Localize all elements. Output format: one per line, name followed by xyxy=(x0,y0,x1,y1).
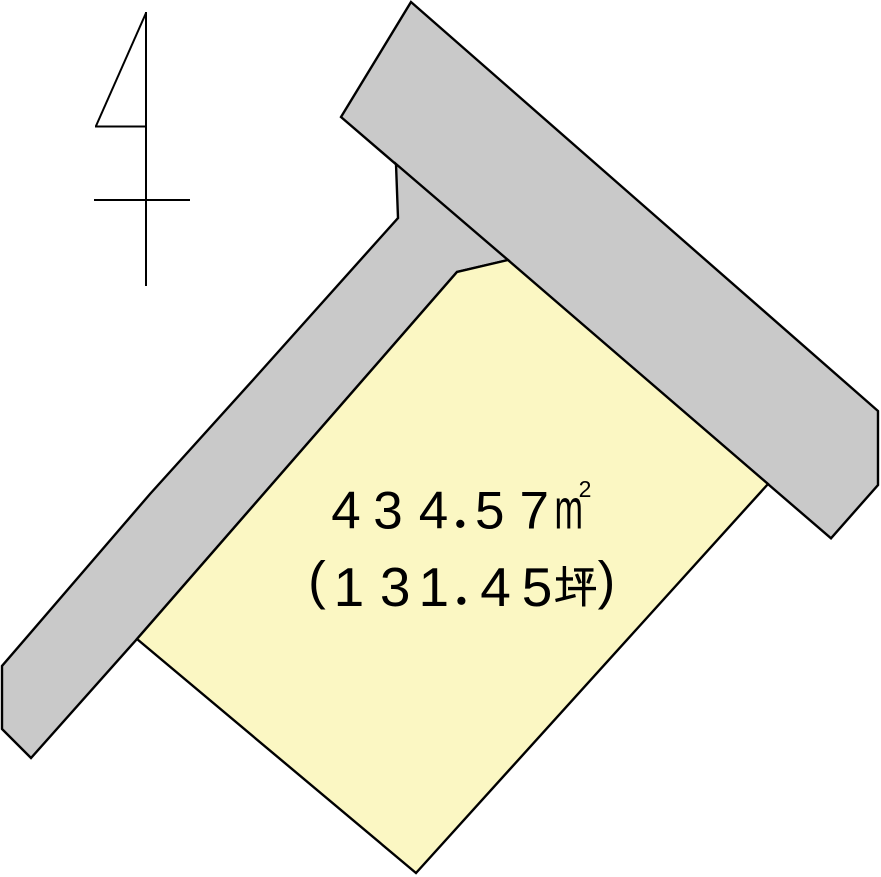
svg-text:2: 2 xyxy=(579,476,592,502)
svg-text:1: 1 xyxy=(419,556,450,618)
svg-text:4: 4 xyxy=(419,482,448,541)
svg-text:(: ( xyxy=(308,552,326,611)
svg-text:7: 7 xyxy=(520,482,549,541)
svg-text:3: 3 xyxy=(380,556,411,618)
svg-text:3: 3 xyxy=(373,482,402,541)
svg-text:1: 1 xyxy=(334,556,365,618)
svg-text:): ) xyxy=(598,552,616,611)
svg-text:5: 5 xyxy=(522,556,553,618)
svg-text:4: 4 xyxy=(480,556,511,618)
svg-text:5: 5 xyxy=(475,482,504,541)
svg-text:4: 4 xyxy=(331,482,360,541)
